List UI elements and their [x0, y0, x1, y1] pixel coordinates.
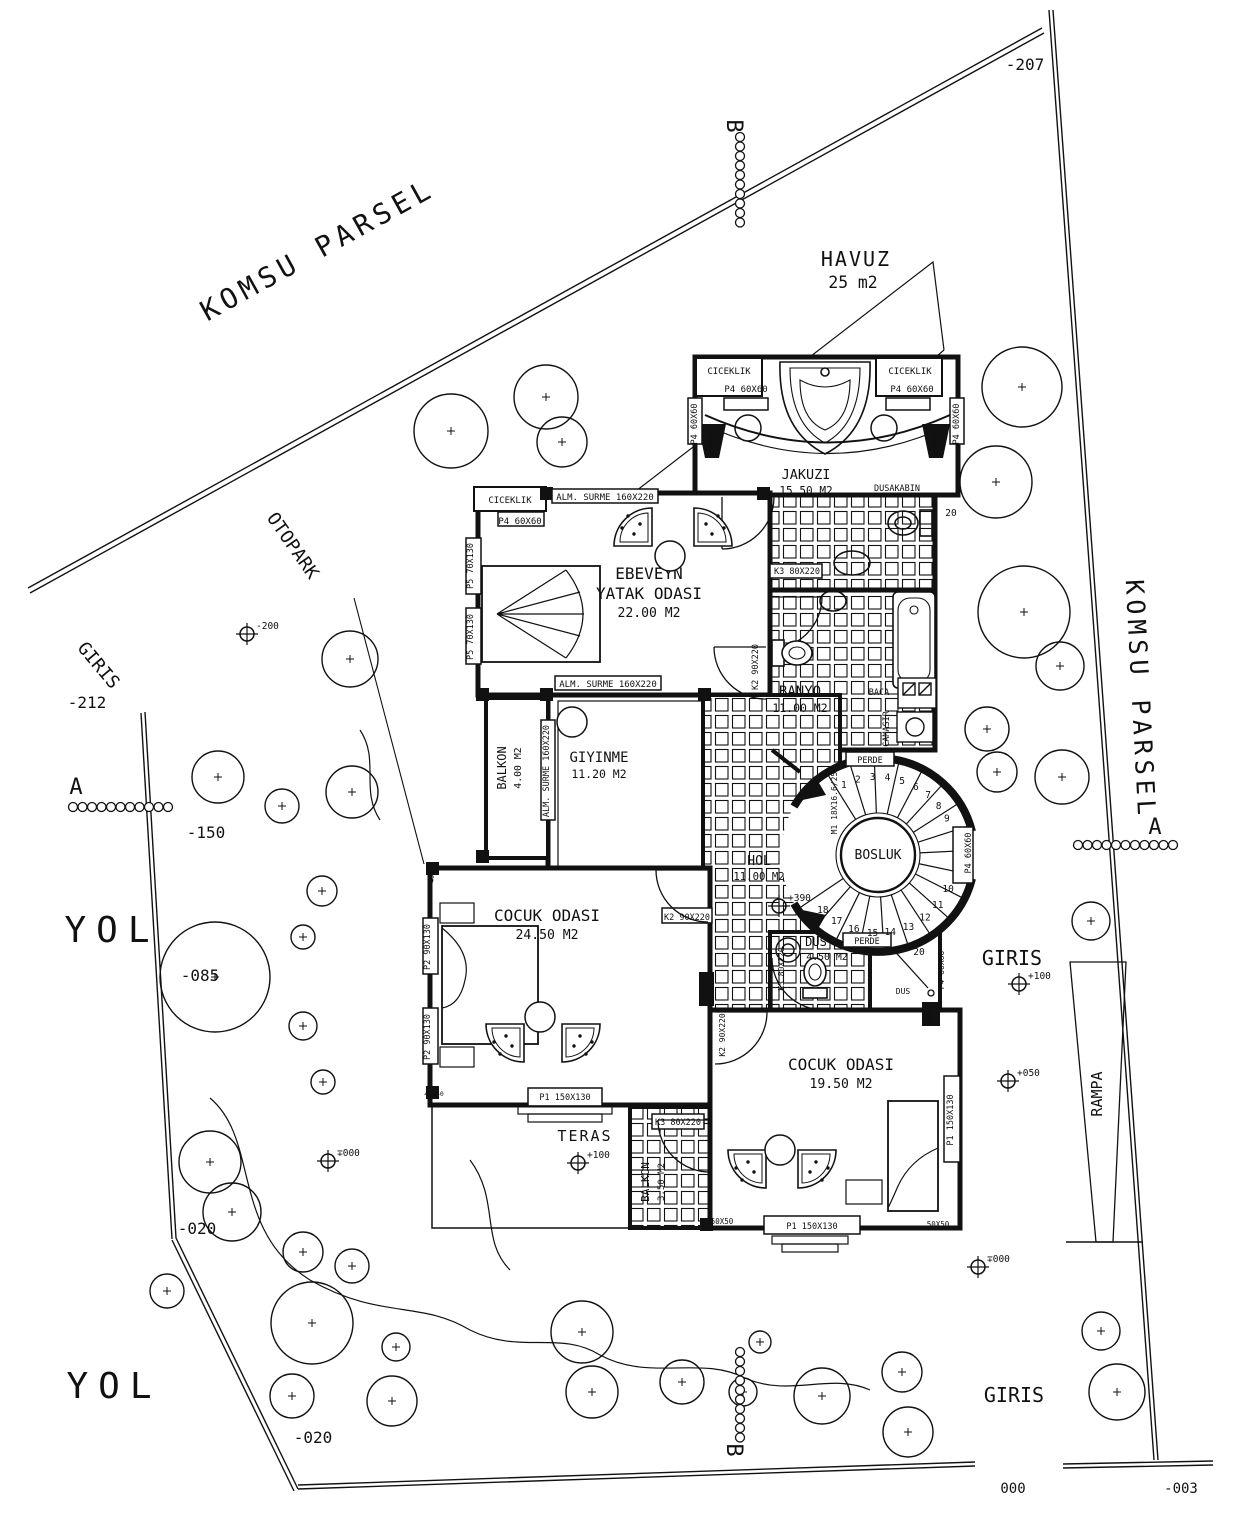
tag-perde-top: PERDE [857, 756, 883, 766]
level-minus-212: -212 [68, 693, 107, 712]
teras-edge [432, 1105, 630, 1228]
section-a-left: A [69, 775, 82, 800]
tag-dusakabin: DUSAKABIN [874, 484, 920, 494]
room-cocuk-odasi-1-name: COCUK ODASI [494, 906, 600, 925]
tree [382, 1333, 410, 1361]
tree [150, 1274, 184, 1308]
tag-25x10: 25X10 [703, 981, 710, 999]
stair-step-5: 5 [899, 776, 905, 787]
tag-p1-cocuk1: P1 150X130 [539, 1093, 590, 1103]
tag-40x40-col-left: 40X40 [707, 432, 715, 452]
tree [289, 1012, 317, 1040]
tag-40x40-c1-top: 40X40 [428, 863, 436, 883]
tag-40x40-entry: 40X40 [926, 1004, 934, 1024]
level-minus-020-bottom: -020 [294, 1428, 333, 1447]
tag-50x50-left: 50X50 [711, 1217, 734, 1226]
room-ebeveyn-yatak-odasi-area: 22.00 M2 [617, 606, 680, 621]
room-dus-name: DUS [805, 935, 827, 949]
tree [335, 1249, 369, 1283]
giris-right: GIRIS [982, 946, 1042, 970]
ciceklik-bedroom: CICEKLIK [488, 496, 532, 506]
stair-step-3: 3 [870, 772, 876, 783]
section-b-top-chain [736, 133, 745, 228]
tag-p5-upper: P5 70X130 [466, 543, 476, 589]
level-minus-020-left: -020 [178, 1219, 217, 1238]
tree [1089, 1364, 1145, 1420]
stair-step-16: 16 [848, 924, 860, 935]
ciceklik-top-left: CICEKLIK [707, 367, 751, 377]
section-b-bottom: B [721, 1443, 746, 1456]
level-000: 000 [1000, 1481, 1025, 1497]
section-a-left-chain [69, 803, 173, 812]
marker-minus-200-label: -200 [256, 621, 279, 632]
tree [367, 1376, 417, 1426]
tag-p4-top-left: P4 60X60 [724, 385, 767, 395]
tree [978, 566, 1070, 658]
stair-step-1: 1 [841, 780, 847, 791]
marker-000-left-label: ∓000 [337, 1148, 360, 1159]
tree [265, 789, 299, 823]
floor-plan-canvas: -200+390+100+100+050∓000∓000JAKUZI15.50 … [0, 0, 1239, 1513]
tag-dus-small: DUS [896, 987, 911, 996]
tag-p4-bedroom: P4 60X60 [498, 517, 541, 527]
tag-p2-lower: P2 90X130 [423, 1014, 433, 1060]
room-jakuzi-area: 15.50 M2 [779, 485, 832, 498]
tree [749, 1331, 771, 1353]
tree [660, 1360, 704, 1404]
tag-p2-upper: P2 90X130 [423, 924, 433, 970]
marker-minus-200: -200 [236, 621, 279, 645]
stair-step-18: 18 [817, 905, 829, 916]
rampa-label: RAMPA [1088, 1071, 1106, 1116]
baca-box [898, 678, 936, 708]
tree [192, 751, 244, 803]
marker-000-left: ∓000 [317, 1148, 360, 1172]
stair-step-13: 13 [903, 922, 914, 933]
room-teras-name: TERAS [557, 1127, 612, 1145]
tag-p4-stair: P4 60X60 [964, 833, 974, 874]
room-hol-name: HOL [747, 854, 771, 869]
marker-plus-100-teras-label: +100 [587, 1150, 610, 1161]
tree [960, 446, 1032, 518]
yol-left: YOL [64, 910, 159, 951]
toilet-dus [803, 958, 827, 998]
stair-step-17: 17 [831, 916, 842, 927]
giris-left: GIRIS [73, 638, 124, 693]
tree [965, 707, 1009, 751]
stair-step-12: 12 [919, 912, 930, 923]
stair-step-10: 10 [942, 884, 954, 895]
tree [882, 1352, 922, 1392]
stair-step-6: 6 [913, 782, 919, 793]
room-jakuzi-name: JAKUZI [782, 467, 831, 483]
room-cocuk-odasi-1-area: 24.50 M2 [515, 928, 578, 943]
tag-alm-surme-giyinme: ALM. SURME 160X220 [542, 725, 552, 817]
ciceklik-top-right: CICEKLIK [888, 367, 932, 377]
tag-p1-cocuk2-right: P1 150X130 [946, 1094, 956, 1145]
room-balkon-1-name: BALKON [495, 746, 509, 789]
room-balkon-2-name: BALKON [639, 1162, 652, 1202]
tag-k2-corridor: K2 90X220 [718, 1013, 727, 1057]
tree [883, 1407, 933, 1457]
room-cocuk-odasi-2-name: COCUK ODASI [788, 1055, 894, 1074]
marker-plus-100-giris-label: +100 [1028, 971, 1051, 982]
bathtub [893, 592, 935, 688]
giris-bottom: GIRIS [984, 1383, 1044, 1407]
tree [566, 1366, 618, 1418]
tree [270, 1374, 314, 1418]
tag-p4-entry: P4 60X60 [937, 951, 946, 990]
tag-p4-wall-right: P4 60X60 [952, 404, 962, 445]
round-table [655, 541, 685, 571]
tag-40x40-c1-bottom: 40X40 [424, 1090, 444, 1098]
section-b-top: B [721, 119, 746, 132]
tag-k3-dus: K3 80X220 [777, 947, 786, 991]
marker-plus-390-label: +390 [788, 893, 811, 904]
room-balkon-1-area: 4.00 M2 [513, 747, 524, 789]
marker-000-right: ∓000 [967, 1254, 1010, 1278]
room-banyo-area: 11.00 M2 [772, 701, 827, 715]
stair-step-7: 7 [925, 790, 931, 801]
marker-plus-050: +050 [997, 1068, 1040, 1092]
tag-m1-stair: M1 18X16.6/25 [830, 772, 839, 835]
marker-plus-100-giris: +100 [1008, 971, 1051, 995]
tag-camasir: CAMASIR [882, 710, 892, 747]
stair-step-9: 9 [944, 813, 950, 824]
tree [982, 347, 1062, 427]
round-table [525, 1002, 555, 1032]
tag-p5-lower: P5 70X130 [466, 614, 476, 660]
room-hol-area: 11.00 M2 [733, 870, 784, 883]
tree [291, 925, 315, 949]
tree [283, 1232, 323, 1272]
tree [311, 1070, 335, 1094]
tag-k3-balkon2: K3 80X220 [655, 1118, 701, 1128]
stair-step-14: 14 [884, 927, 896, 938]
tree [1072, 902, 1110, 940]
pool-havuz-area: 25 m2 [828, 273, 877, 292]
tree [1082, 1312, 1120, 1350]
level-minus-003: -003 [1164, 1481, 1198, 1497]
tree [414, 394, 488, 468]
round-table [765, 1135, 795, 1165]
tag-p1-cocuk2-bottom: P1 150X130 [786, 1222, 837, 1232]
stair-step-2: 2 [855, 775, 861, 786]
room-giyinme-area: 11.20 M2 [571, 767, 626, 781]
stair-step-11: 11 [932, 900, 944, 911]
tag-alm-surme-top: ALM. SURME 160X220 [556, 493, 654, 503]
marker-000-right-label: ∓000 [987, 1254, 1010, 1265]
tree [307, 876, 337, 906]
section-a-right: A [1148, 815, 1161, 840]
level-minus-085: -085 [181, 966, 220, 985]
washer-camasir [897, 712, 933, 742]
tag-p4-wall-left: P4 60X60 [690, 404, 700, 445]
tag-k3-banyo: K3 80X220 [774, 567, 820, 577]
tag-baca: BACA [869, 688, 889, 698]
section-a-right-chain [1074, 841, 1178, 850]
dim-20-dus: 20 [913, 947, 925, 958]
tag-40x40-col-right: 40X40 [931, 432, 939, 452]
room-ebeveyn-yatak-odasi-name: YATAK ODASI [596, 584, 702, 603]
round-table [557, 707, 587, 737]
komsu-parsel-right: KOMSU PARSEL [1120, 579, 1162, 821]
tag-k2-cocuk1: K2 90X220 [664, 913, 710, 923]
room-shell-cocuk2 [710, 1010, 960, 1228]
tag-p4-top-right: P4 60X60 [890, 385, 933, 395]
tag-k2-bedroom: K2 90X220 [751, 644, 761, 690]
tree [551, 1301, 613, 1363]
floor-plan-page: -200+390+100+100+050∓000∓000JAKUZI15.50 … [0, 0, 1239, 1513]
tree [514, 365, 578, 429]
tag-alm-surme-mid: ALM. SURME 160X220 [559, 680, 657, 690]
toilet-banyo [772, 640, 812, 666]
tree [977, 752, 1017, 792]
marker-plus-100-teras: +100 [567, 1150, 610, 1174]
room-cocuk-odasi-2-area: 19.50 M2 [809, 1077, 872, 1092]
level-minus-150: -150 [187, 823, 226, 842]
level-minus-207: -207 [1006, 55, 1045, 74]
yol-bottom: YOL [66, 1366, 161, 1407]
tree [794, 1368, 850, 1424]
room-banyo-name: BANYO [779, 684, 821, 700]
room-dus-area: 4.50 M2 [806, 952, 848, 963]
tag-50x50-right: 50X50 [927, 1220, 950, 1229]
stair-step-15: 15 [867, 928, 878, 939]
dim-20-top: 20 [945, 508, 957, 519]
marker-plus-050-label: +050 [1017, 1068, 1040, 1079]
stair-step-8: 8 [936, 801, 942, 812]
room-bosluk-name: BOSLUK [855, 848, 902, 863]
stair-step-4: 4 [885, 773, 891, 784]
komsu-parsel-upper: KOMSU PARSEL [195, 172, 440, 328]
room-giyinme-name: GIYINME [569, 750, 628, 766]
pool-havuz-name: HAVUZ [821, 247, 891, 271]
tree [1035, 750, 1089, 804]
tree [1036, 642, 1084, 690]
room-balkon-2-area: 3.50 M2 [657, 1163, 667, 1201]
otopark-label: OTOPARK [262, 509, 323, 583]
